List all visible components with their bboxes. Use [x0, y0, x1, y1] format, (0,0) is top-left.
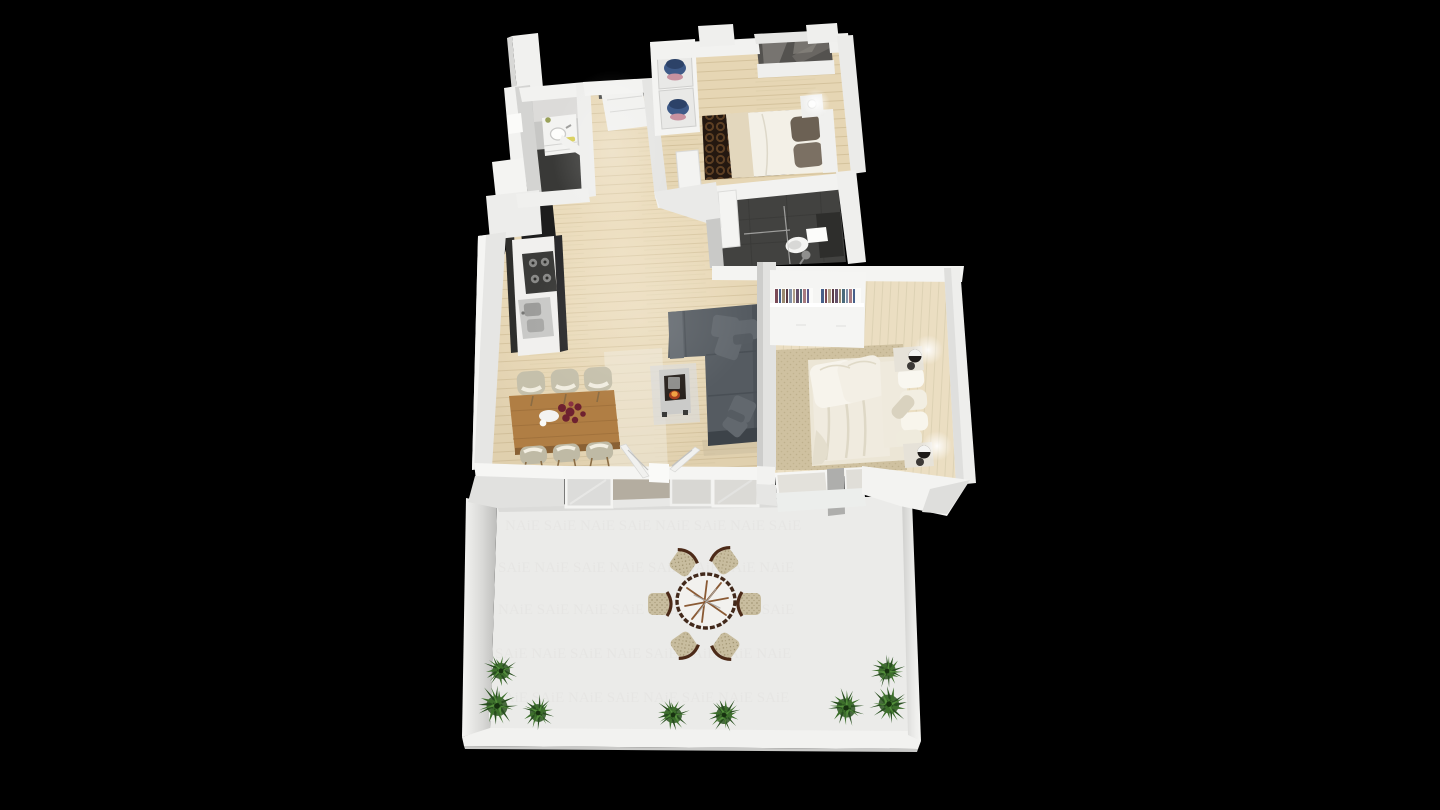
svg-text:SAiE NAiE SAiE NAiE SAiE: SAiE NAiE SAiE NAiE SAiE NAiE SAiE NAiE [498, 560, 794, 576]
svg-text:SAiE NAiE SAiE NAiE SAiE: SAiE NAiE SAiE NAiE SAiE NAiE SAiE NAiE [495, 646, 791, 662]
svg-text:NAiE SAiE NAiE SAiE NAiE: NAiE SAiE NAiE SAiE NAiE SAiE NAiE SAiE [505, 518, 801, 534]
svg-text:NAiE SAiE NAiE SAiE NAiE: NAiE SAiE NAiE SAiE NAiE SAiE NAiE SAiE [493, 690, 789, 706]
